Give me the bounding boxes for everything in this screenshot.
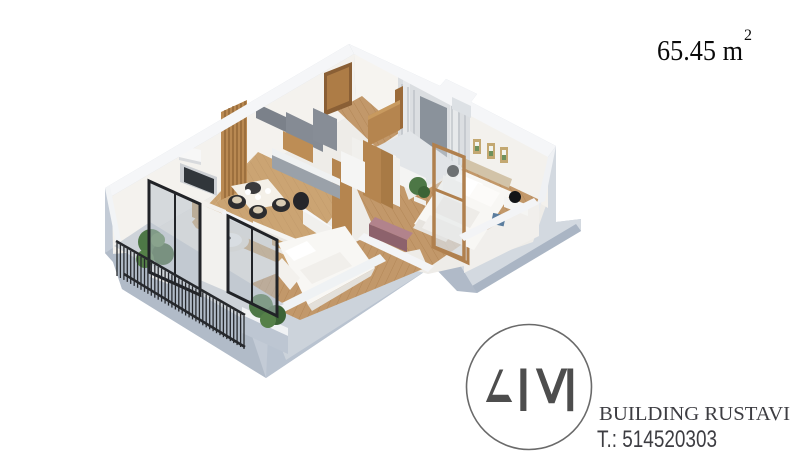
svg-text:T.: 514520303: T.: 514520303 (597, 426, 717, 453)
svg-text:2: 2 (744, 27, 752, 44)
svg-text:BUILDING RUSTAVI: BUILDING RUSTAVI (599, 404, 790, 425)
svg-text:65.45 m: 65.45 m (657, 35, 743, 67)
